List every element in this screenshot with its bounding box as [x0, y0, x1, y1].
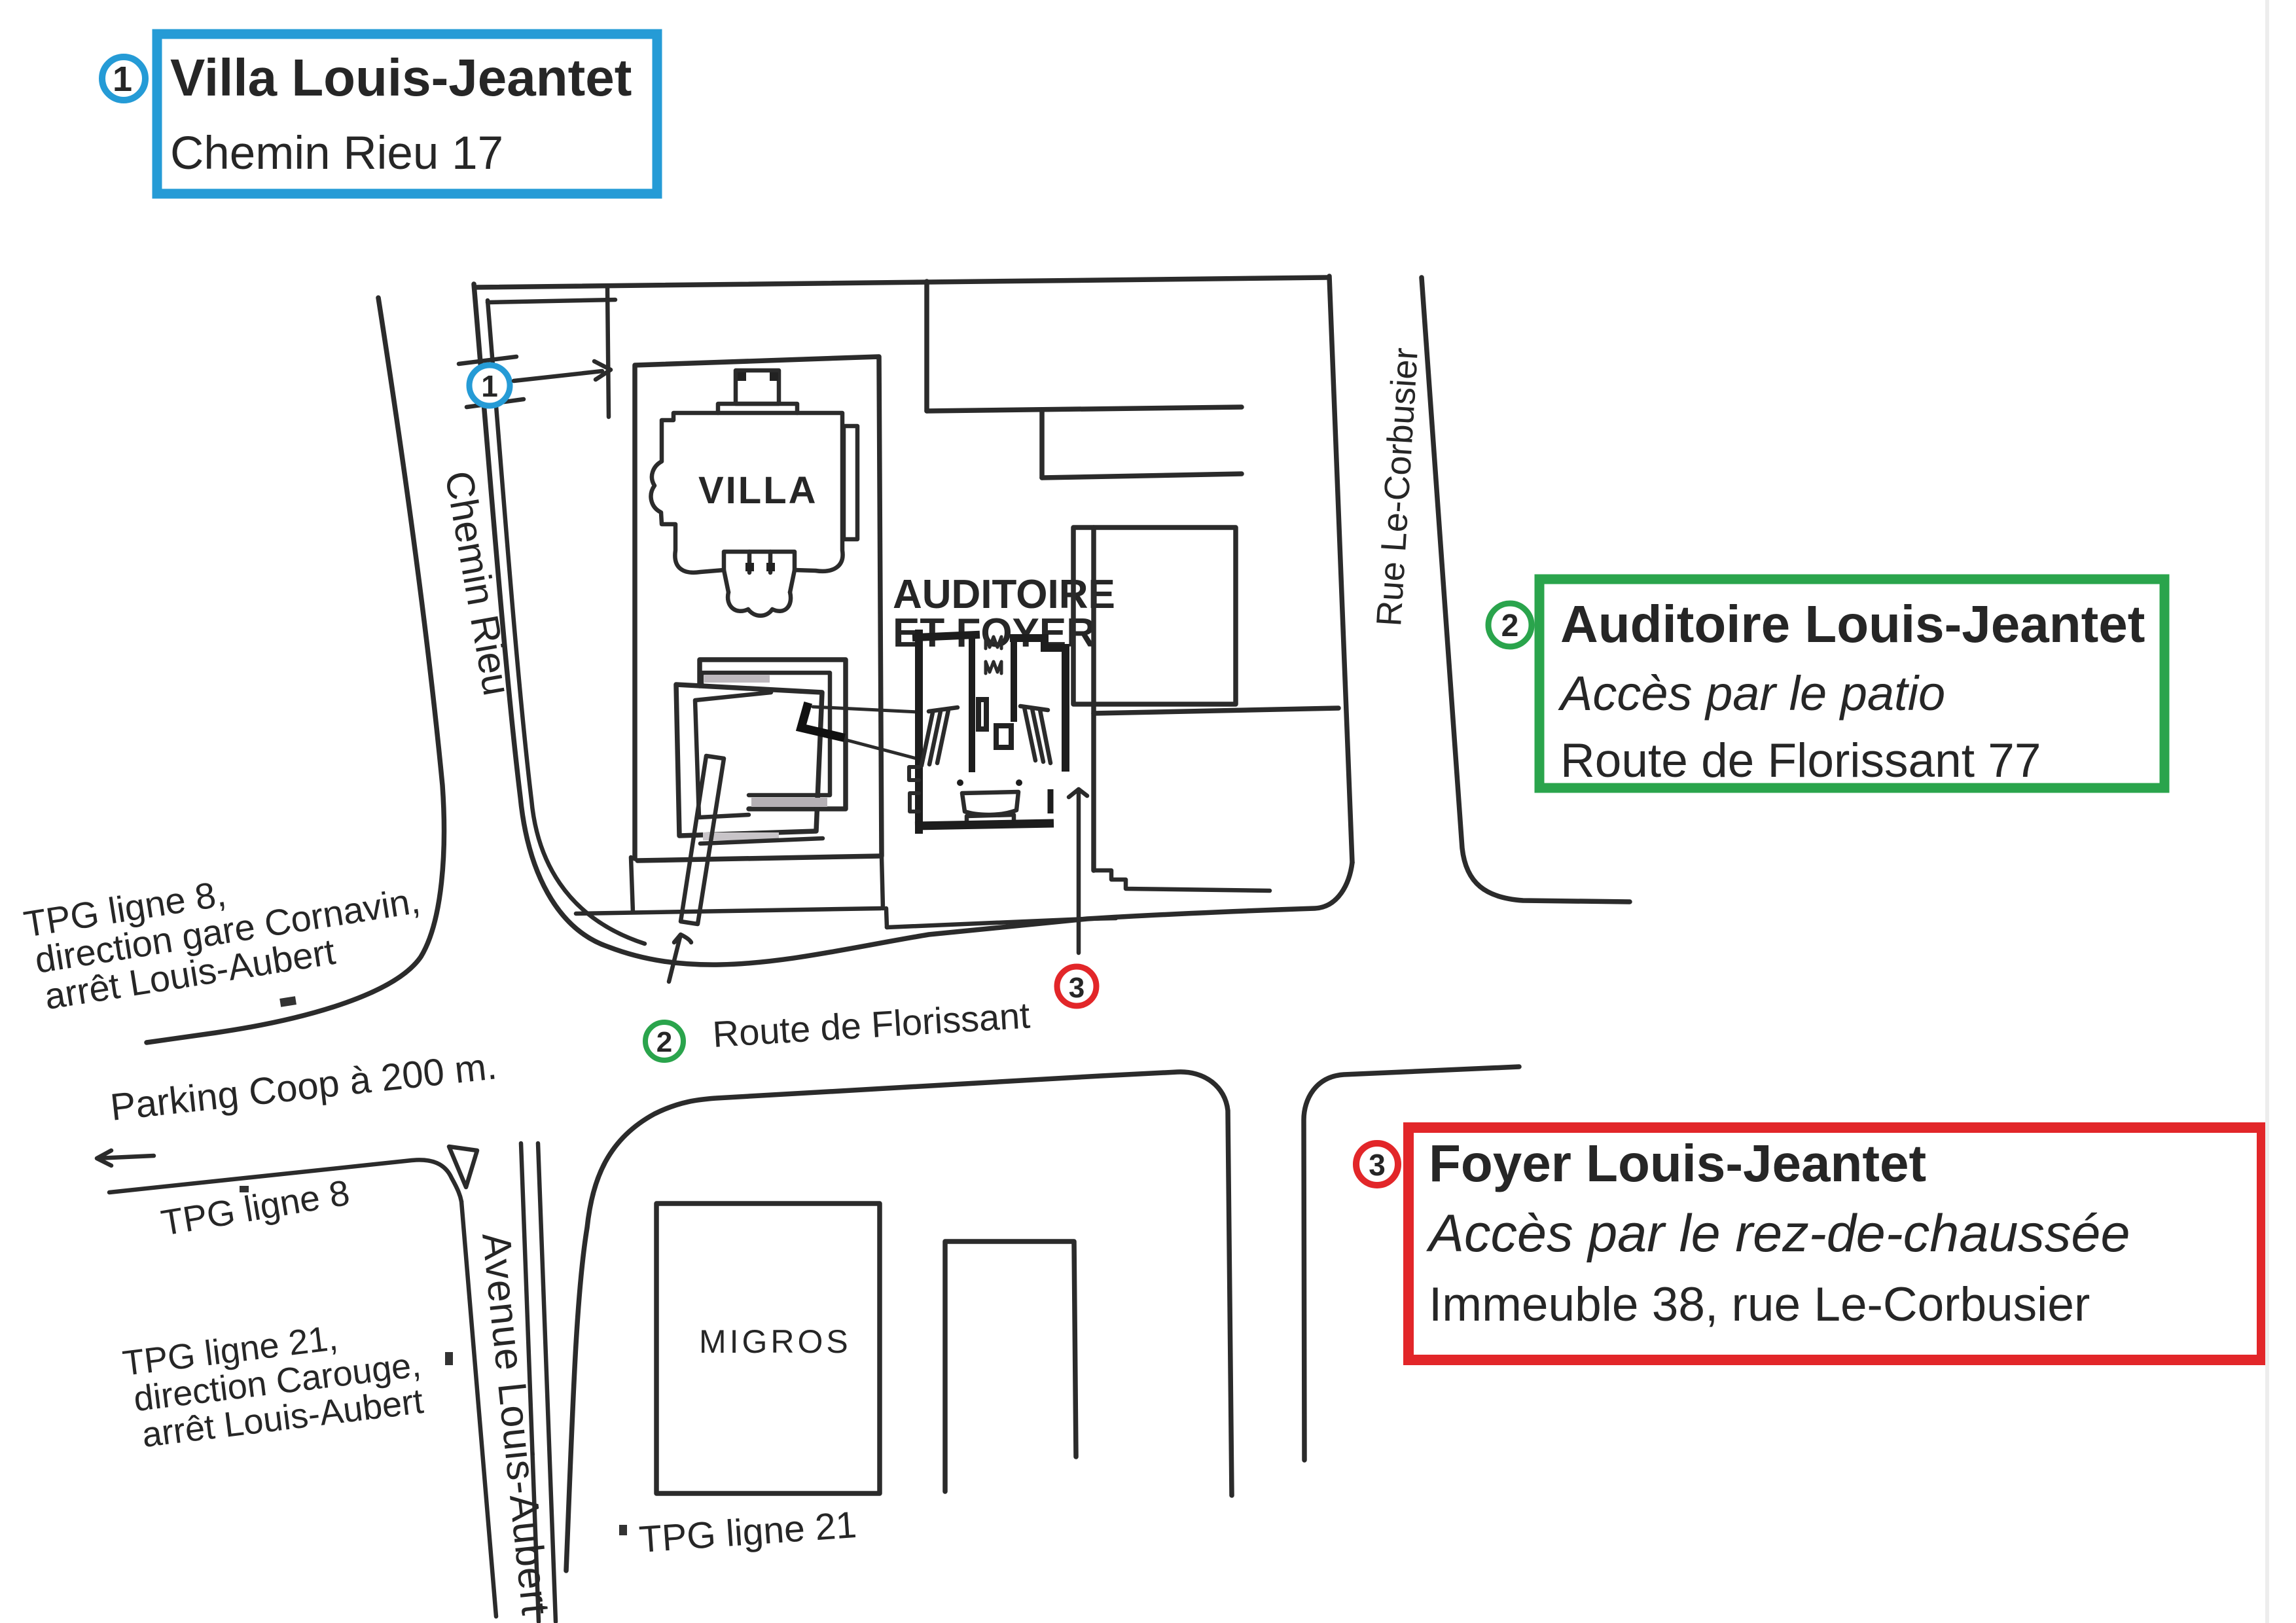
- svg-text:Chemin Rieu 17: Chemin Rieu 17: [170, 128, 503, 179]
- svg-text:3: 3: [1369, 1148, 1386, 1182]
- svg-text:Villa Louis-Jeantet: Villa Louis-Jeantet: [170, 48, 632, 107]
- svg-text:1: 1: [113, 60, 132, 99]
- svg-text:Foyer Louis-Jeantet: Foyer Louis-Jeantet: [1429, 1134, 1926, 1192]
- svg-text:Accès par le patio: Accès par le patio: [1558, 666, 1945, 721]
- svg-text:2: 2: [656, 1026, 672, 1058]
- svg-text:Route de Florissant 77: Route de Florissant 77: [1560, 734, 2041, 787]
- svg-text:VILLA: VILLA: [698, 469, 818, 512]
- svg-text:1: 1: [481, 369, 498, 403]
- svg-text:2: 2: [1501, 609, 1519, 643]
- svg-text:3: 3: [1069, 972, 1085, 1004]
- svg-text:Auditoire Louis-Jeantet: Auditoire Louis-Jeantet: [1560, 595, 2145, 653]
- svg-text:Accès par le rez-de-chaussée: Accès par le rez-de-chaussée: [1426, 1204, 2130, 1263]
- svg-text:Immeuble 38, rue Le-Corbusier: Immeuble 38, rue Le-Corbusier: [1429, 1278, 2090, 1331]
- svg-text:MIGROS: MIGROS: [699, 1323, 852, 1360]
